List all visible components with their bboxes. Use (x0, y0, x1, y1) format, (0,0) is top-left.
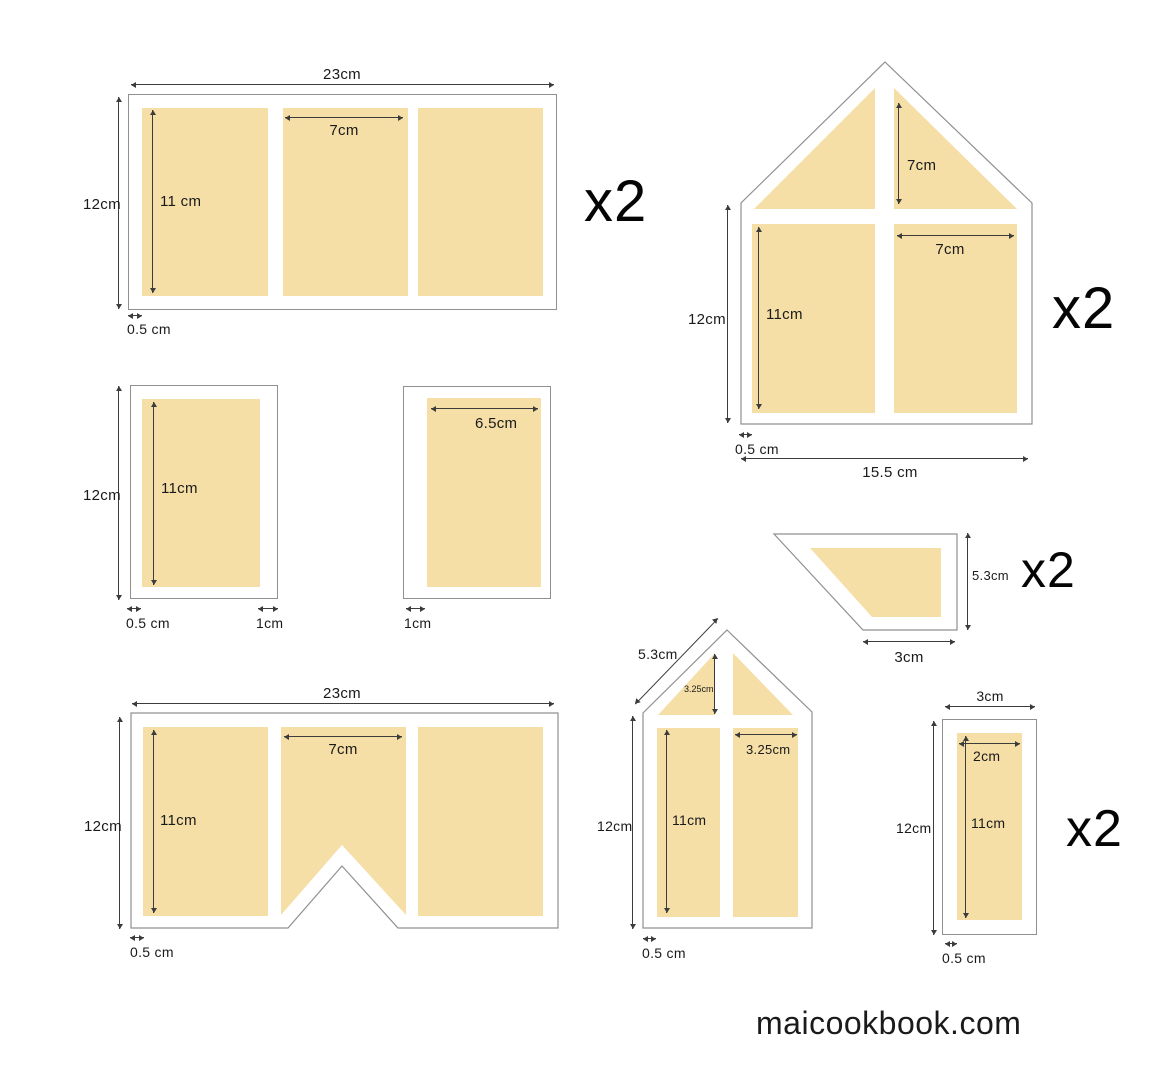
dim-label-width: 3cm (894, 649, 923, 667)
dimension-arrow-width (741, 458, 1028, 459)
dim-label-height: 5.3cm (972, 568, 1009, 584)
dim-label-panel-height: 11cm (672, 812, 706, 829)
dimension-arrow-panel-width (959, 743, 1020, 744)
dimension-arrow-panel-height (153, 402, 154, 585)
dim-label-height: 12cm (597, 818, 632, 835)
dim-label-panel-height: 11cm (766, 306, 803, 324)
dim-label-height: 12cm (84, 818, 122, 836)
dimension-arrow-width (132, 703, 554, 704)
dimension-arrow-height (933, 721, 934, 935)
dim-label-width: 3cm (976, 688, 1003, 705)
dim-label-roof-edge: 5.3cm (638, 646, 678, 663)
dimension-arrow-height (967, 533, 968, 630)
dim-label-gap: 0.5 cm (130, 944, 174, 961)
dim-label-gable-height: 3.25cm (684, 684, 714, 695)
dimension-arrow-gable-height (898, 103, 899, 204)
dim-label-panel-width: 3.25cm (746, 742, 790, 758)
dim-label-panel-width: 7cm (328, 741, 357, 759)
icing-panel (418, 108, 543, 296)
dimension-arrow-gap (643, 938, 656, 939)
quantity-label: x2 (584, 173, 647, 231)
dimension-arrow-gap (130, 937, 144, 938)
dim-label-gap: 0.5 cm (942, 950, 986, 967)
dimension-arrow-gap (739, 434, 752, 435)
dim-label-height: 12cm (83, 196, 121, 214)
dim-label-gable-height: 7cm (907, 157, 936, 175)
gable-wall-drawing (739, 60, 1034, 426)
dimension-arrow-panel-height (152, 110, 153, 293)
dimension-arrow-panel-height (153, 730, 154, 913)
chimney-drawing (773, 532, 958, 632)
dimension-arrow-side-gap (406, 608, 425, 609)
dim-label-panel-width: 7cm (935, 241, 964, 259)
dim-label-side-gap: 1cm (256, 615, 283, 632)
dimension-arrow-gap (127, 608, 141, 609)
template-canvas: 23cm 12cm 11 cm 7cm 0.5 cm x2 7cm 11cm 7… (0, 0, 1160, 1083)
dim-label-panel-height: 11cm (160, 812, 197, 830)
dimension-arrow-side-gap (258, 608, 278, 609)
dim-label-width: 15.5 cm (862, 464, 917, 482)
brand-text: maicookbook.com (756, 1005, 1021, 1042)
dim-label-height: 12cm (83, 487, 121, 505)
icing-panel (142, 399, 260, 587)
dim-label-panel-width: 2cm (973, 748, 1000, 765)
dim-label-panel-width: 7cm (329, 122, 358, 140)
dimension-arrow-gable-height (714, 654, 715, 714)
dim-label-height: 12cm (896, 820, 931, 837)
dimension-arrow-panel-width (284, 736, 402, 737)
dimension-arrow-gap (128, 315, 142, 316)
dim-label-gap: 0.5 cm (126, 615, 170, 632)
dim-label-panel-height: 11 cm (160, 193, 201, 211)
icing-panel (418, 727, 543, 916)
quantity-label: x2 (1021, 545, 1076, 595)
dimension-arrow-panel-width (897, 235, 1014, 236)
dim-label-height: 12cm (688, 311, 726, 329)
dimension-arrow-panel-width (735, 734, 797, 735)
dimension-arrow-width (863, 641, 955, 642)
dimension-arrow-width (131, 84, 554, 85)
dim-label-gap: 0.5 cm (127, 321, 171, 338)
dimension-arrow-panel-width (285, 117, 403, 118)
quantity-label: x2 (1066, 803, 1123, 855)
dimension-arrow-panel-height (758, 227, 759, 409)
dim-label-gap: 0.5 cm (642, 945, 686, 962)
quantity-label: x2 (1052, 280, 1115, 338)
dim-label-side-gap: 1cm (404, 615, 431, 632)
dimension-arrow-panel-height (666, 730, 667, 913)
dim-label-panel-height: 11cm (971, 815, 1005, 832)
dim-label-panel-height: 11cm (161, 480, 198, 498)
dim-label-width: 23cm (323, 66, 361, 84)
dimension-arrow-width (945, 706, 1035, 707)
dimension-arrow-panel-height (965, 736, 966, 918)
dimension-arrow-height (727, 205, 728, 423)
dim-label-panel-width: 6.5cm (475, 415, 517, 433)
dimension-arrow-panel-width (431, 408, 538, 409)
dim-label-width: 23cm (323, 685, 361, 703)
dimension-arrow-gap (945, 943, 957, 944)
